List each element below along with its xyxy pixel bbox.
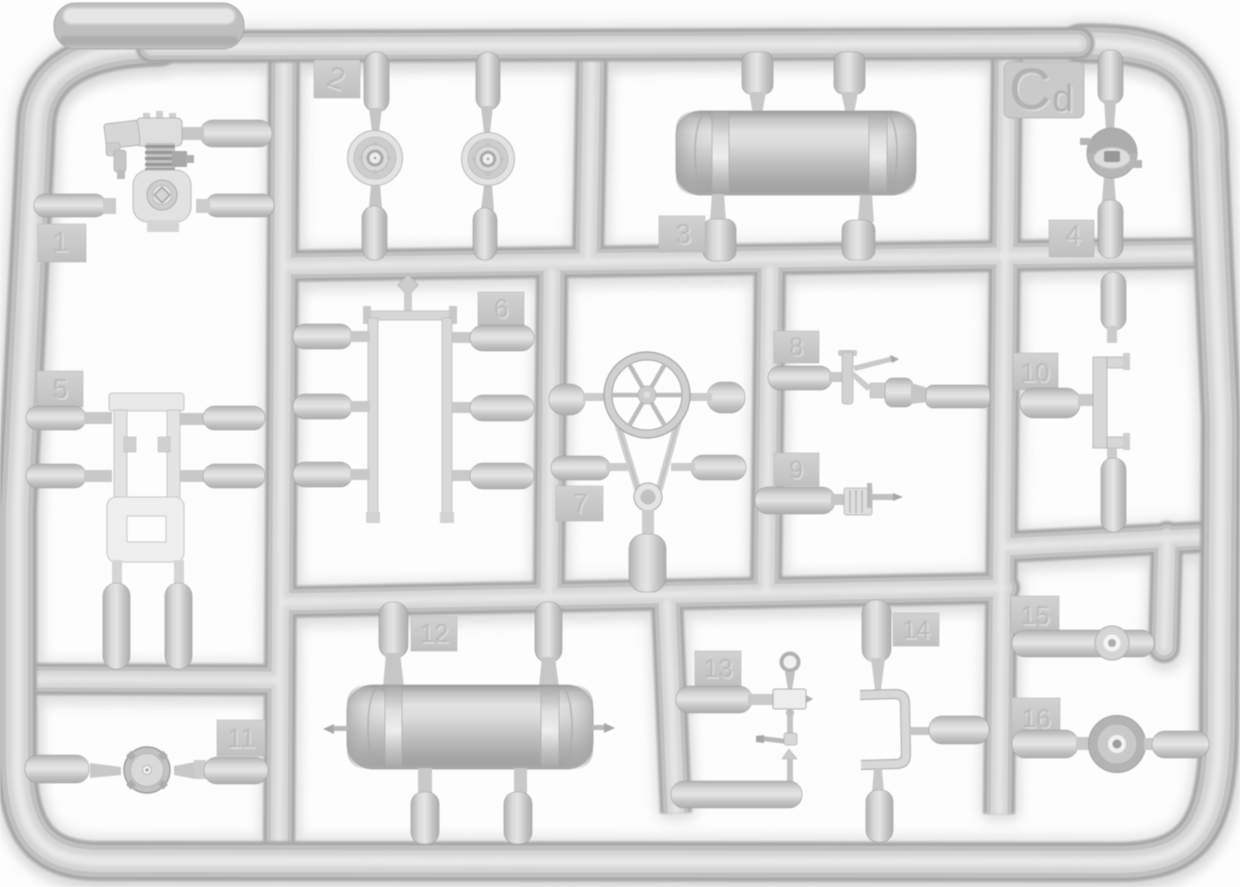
svg-text:13: 13 xyxy=(704,653,733,683)
svg-text:8: 8 xyxy=(789,333,803,361)
svg-text:1: 1 xyxy=(52,226,68,257)
svg-text:7: 7 xyxy=(572,488,587,518)
svg-text:9: 9 xyxy=(789,456,803,484)
svg-text:15: 15 xyxy=(1021,600,1050,630)
svg-text:12: 12 xyxy=(420,618,449,648)
svg-text:4: 4 xyxy=(1065,219,1081,250)
svg-text:6: 6 xyxy=(494,293,508,323)
svg-text:d: d xyxy=(1052,78,1073,120)
svg-text:10: 10 xyxy=(1021,357,1050,387)
svg-text:14: 14 xyxy=(902,616,930,644)
svg-text:3: 3 xyxy=(675,218,691,249)
svg-text:16: 16 xyxy=(1022,703,1051,733)
svg-text:C: C xyxy=(1009,57,1051,122)
svg-text:5: 5 xyxy=(52,373,68,404)
svg-text:11: 11 xyxy=(227,723,255,753)
